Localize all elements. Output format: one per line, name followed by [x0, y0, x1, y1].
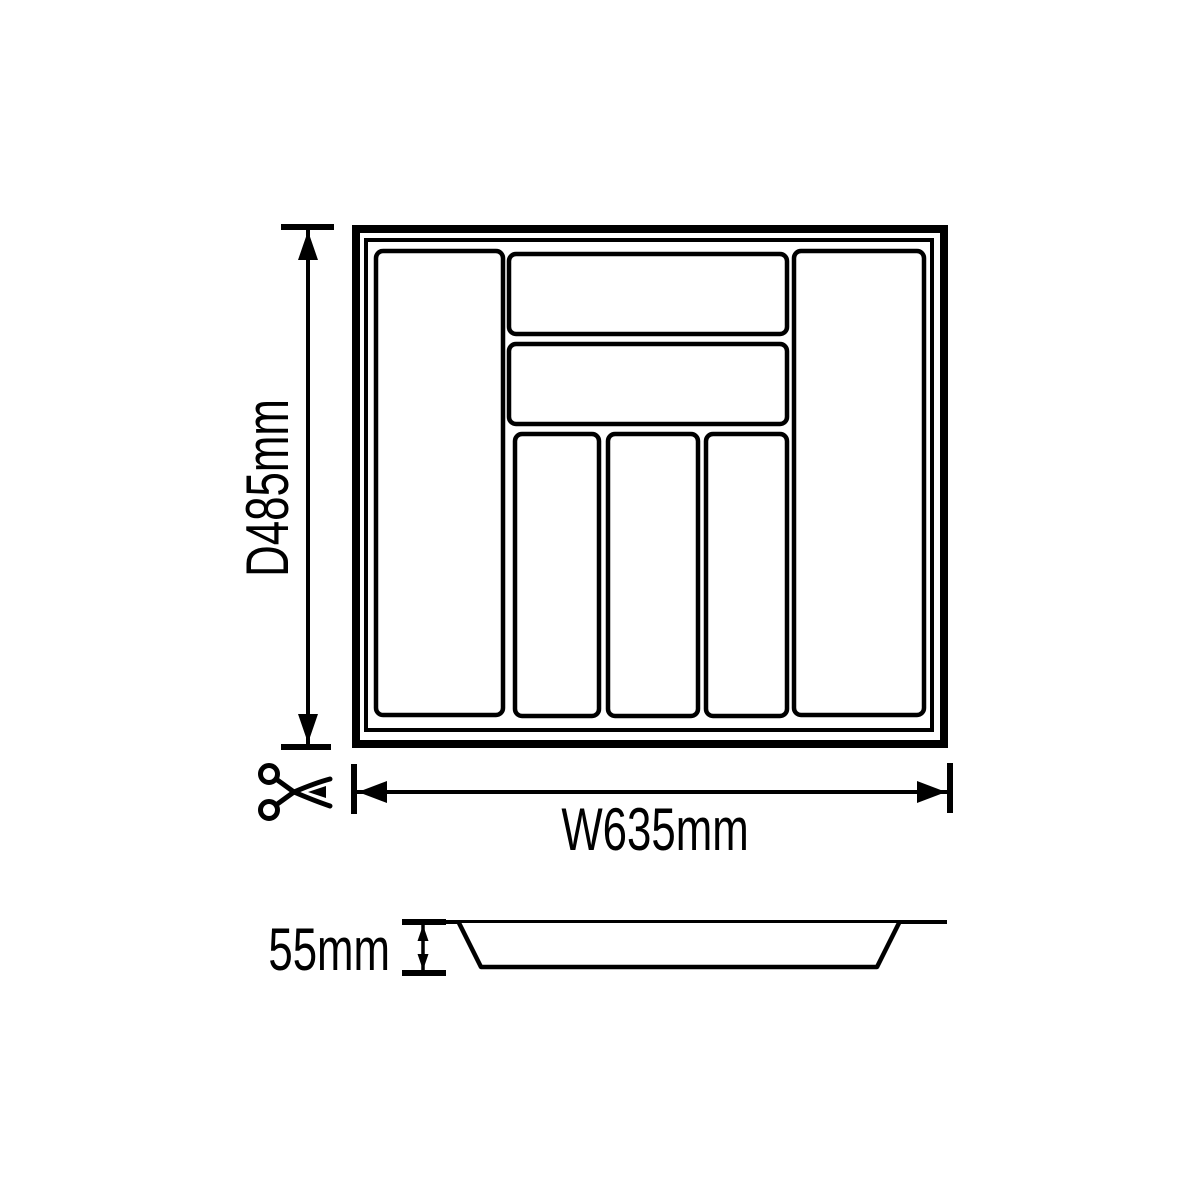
compartment-bottom-left	[515, 434, 599, 716]
compartment-top-wide	[509, 254, 787, 334]
height-dim-label: 55mm	[268, 916, 390, 983]
depth-dimension: D485mm	[234, 227, 334, 747]
compartment-middle-wide	[509, 344, 787, 424]
tray-top-view	[356, 229, 944, 744]
side-view-tray-body	[459, 923, 899, 967]
compartment-bottom-right	[706, 434, 787, 716]
scissors-icon	[261, 766, 331, 819]
compartment-bottom-center	[608, 434, 698, 716]
depth-dim-arrow-down	[298, 714, 318, 743]
width-dim-label: W635mm	[561, 796, 748, 863]
depth-dim-arrow-up	[298, 231, 318, 260]
tray-side-view: 55mm	[268, 916, 947, 983]
compartments	[376, 251, 924, 716]
depth-dim-label: D485mm	[234, 399, 301, 577]
width-dim-arrow-right	[917, 781, 946, 803]
cutlery-tray-drawing: D485mm W635mm	[0, 0, 1200, 1200]
width-dimension: W635mm	[261, 763, 951, 864]
height-dim-arrow-up	[418, 925, 429, 941]
width-dim-arrow-left	[358, 781, 387, 803]
height-dimension: 55mm	[268, 916, 446, 983]
compartment-right-column	[794, 251, 924, 715]
technical-drawing-page: D485mm W635mm	[0, 0, 1200, 1200]
height-dim-arrow-down	[418, 954, 429, 970]
compartment-left-column	[376, 251, 503, 715]
